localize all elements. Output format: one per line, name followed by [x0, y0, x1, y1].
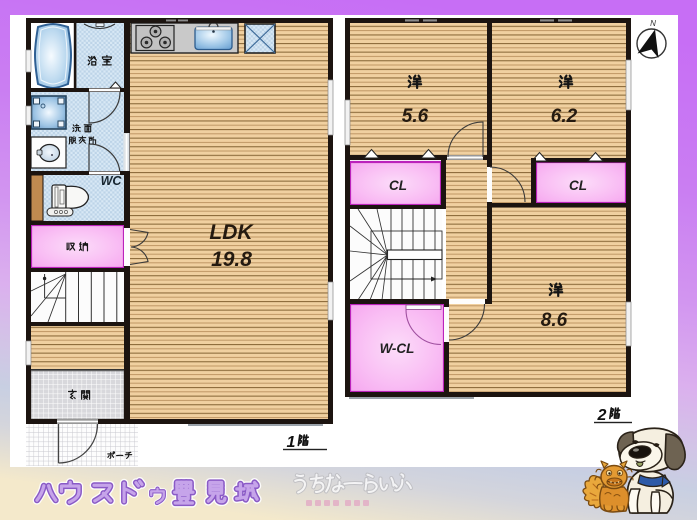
svg-text:6.2: 6.2: [551, 106, 578, 127]
svg-text:8.6: 8.6: [541, 310, 568, 331]
svg-text:2: 2: [597, 407, 607, 424]
svg-text:5.6: 5.6: [402, 106, 429, 127]
svg-text:1: 1: [287, 434, 296, 451]
svg-text:W-CL: W-CL: [380, 341, 415, 356]
svg-text:CL: CL: [569, 178, 587, 193]
svg-text:19.8: 19.8: [211, 248, 252, 271]
svg-text:WC: WC: [101, 174, 123, 188]
svg-text:LDK: LDK: [209, 221, 254, 244]
svg-text:N: N: [650, 19, 656, 28]
svg-text:CL: CL: [389, 178, 407, 193]
